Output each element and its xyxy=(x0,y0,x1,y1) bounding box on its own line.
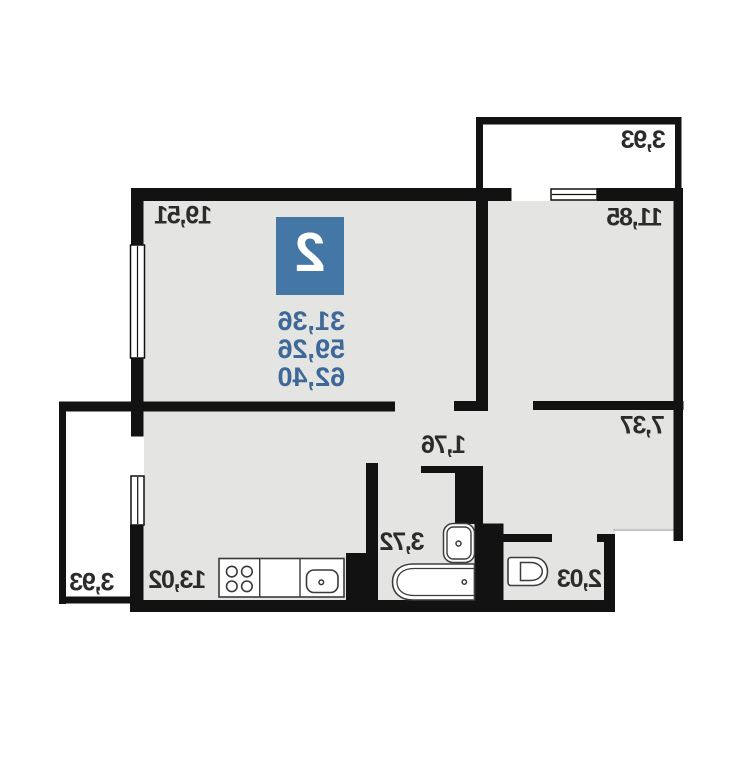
svg-text:62,40: 62,40 xyxy=(278,362,346,392)
svg-text:2,03: 2,03 xyxy=(558,565,602,593)
svg-text:3,72: 3,72 xyxy=(380,528,424,556)
svg-text:13,02: 13,02 xyxy=(149,566,206,594)
svg-text:31,36: 31,36 xyxy=(278,306,346,336)
svg-text:3,93: 3,93 xyxy=(70,569,114,597)
svg-text:59,26: 59,26 xyxy=(278,334,346,364)
svg-text:19,51: 19,51 xyxy=(154,202,212,230)
svg-text:7,37: 7,37 xyxy=(621,412,665,440)
svg-text:1,76: 1,76 xyxy=(422,431,466,459)
svg-text:11,85: 11,85 xyxy=(606,203,662,231)
svg-text:2: 2 xyxy=(295,221,326,283)
svg-text:3,93: 3,93 xyxy=(622,126,666,154)
